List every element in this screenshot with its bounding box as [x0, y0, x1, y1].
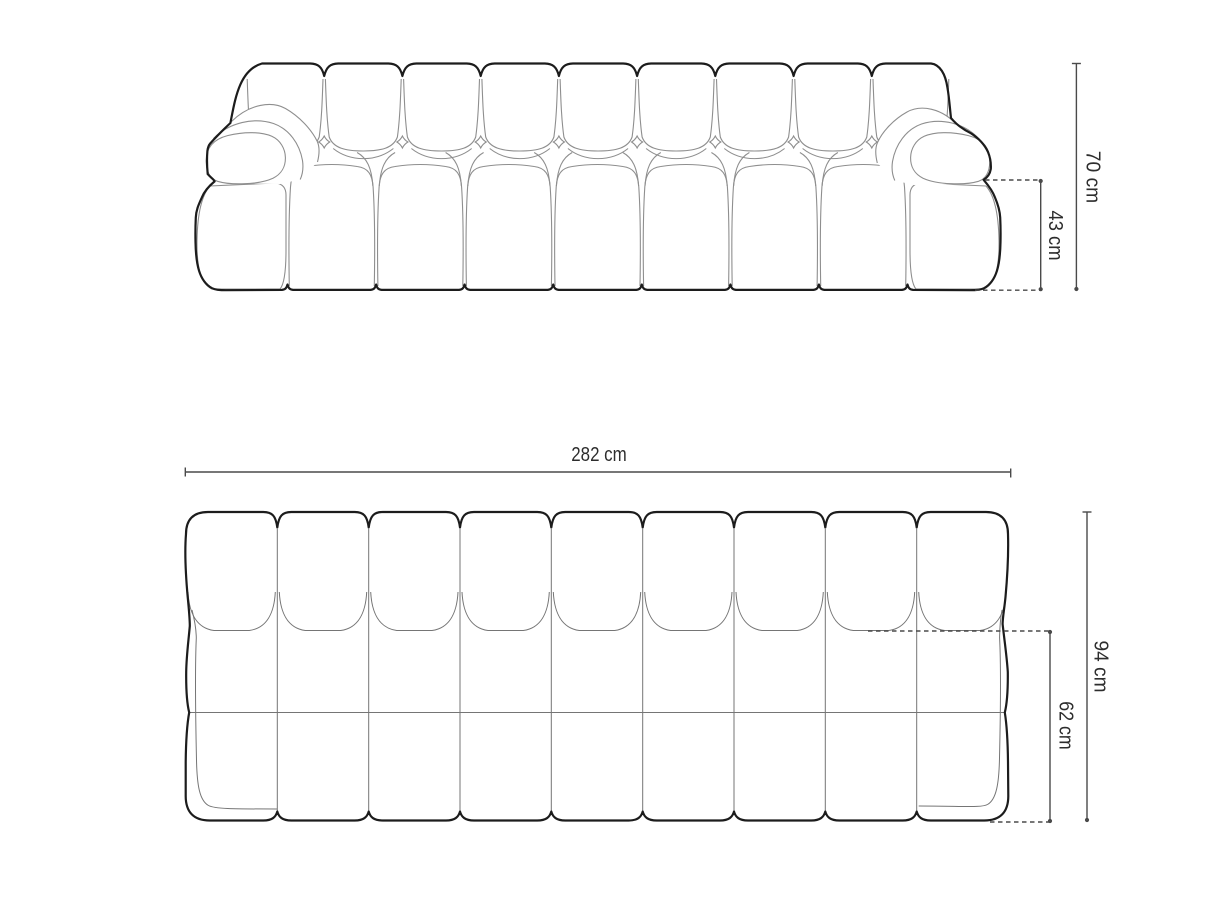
svg-text:43 cm: 43 cm	[1044, 211, 1066, 261]
svg-text:282 cm: 282 cm	[571, 444, 627, 466]
svg-text:62 cm: 62 cm	[1055, 701, 1077, 750]
svg-text:94 cm: 94 cm	[1090, 641, 1112, 693]
svg-text:70 cm: 70 cm	[1082, 151, 1104, 204]
